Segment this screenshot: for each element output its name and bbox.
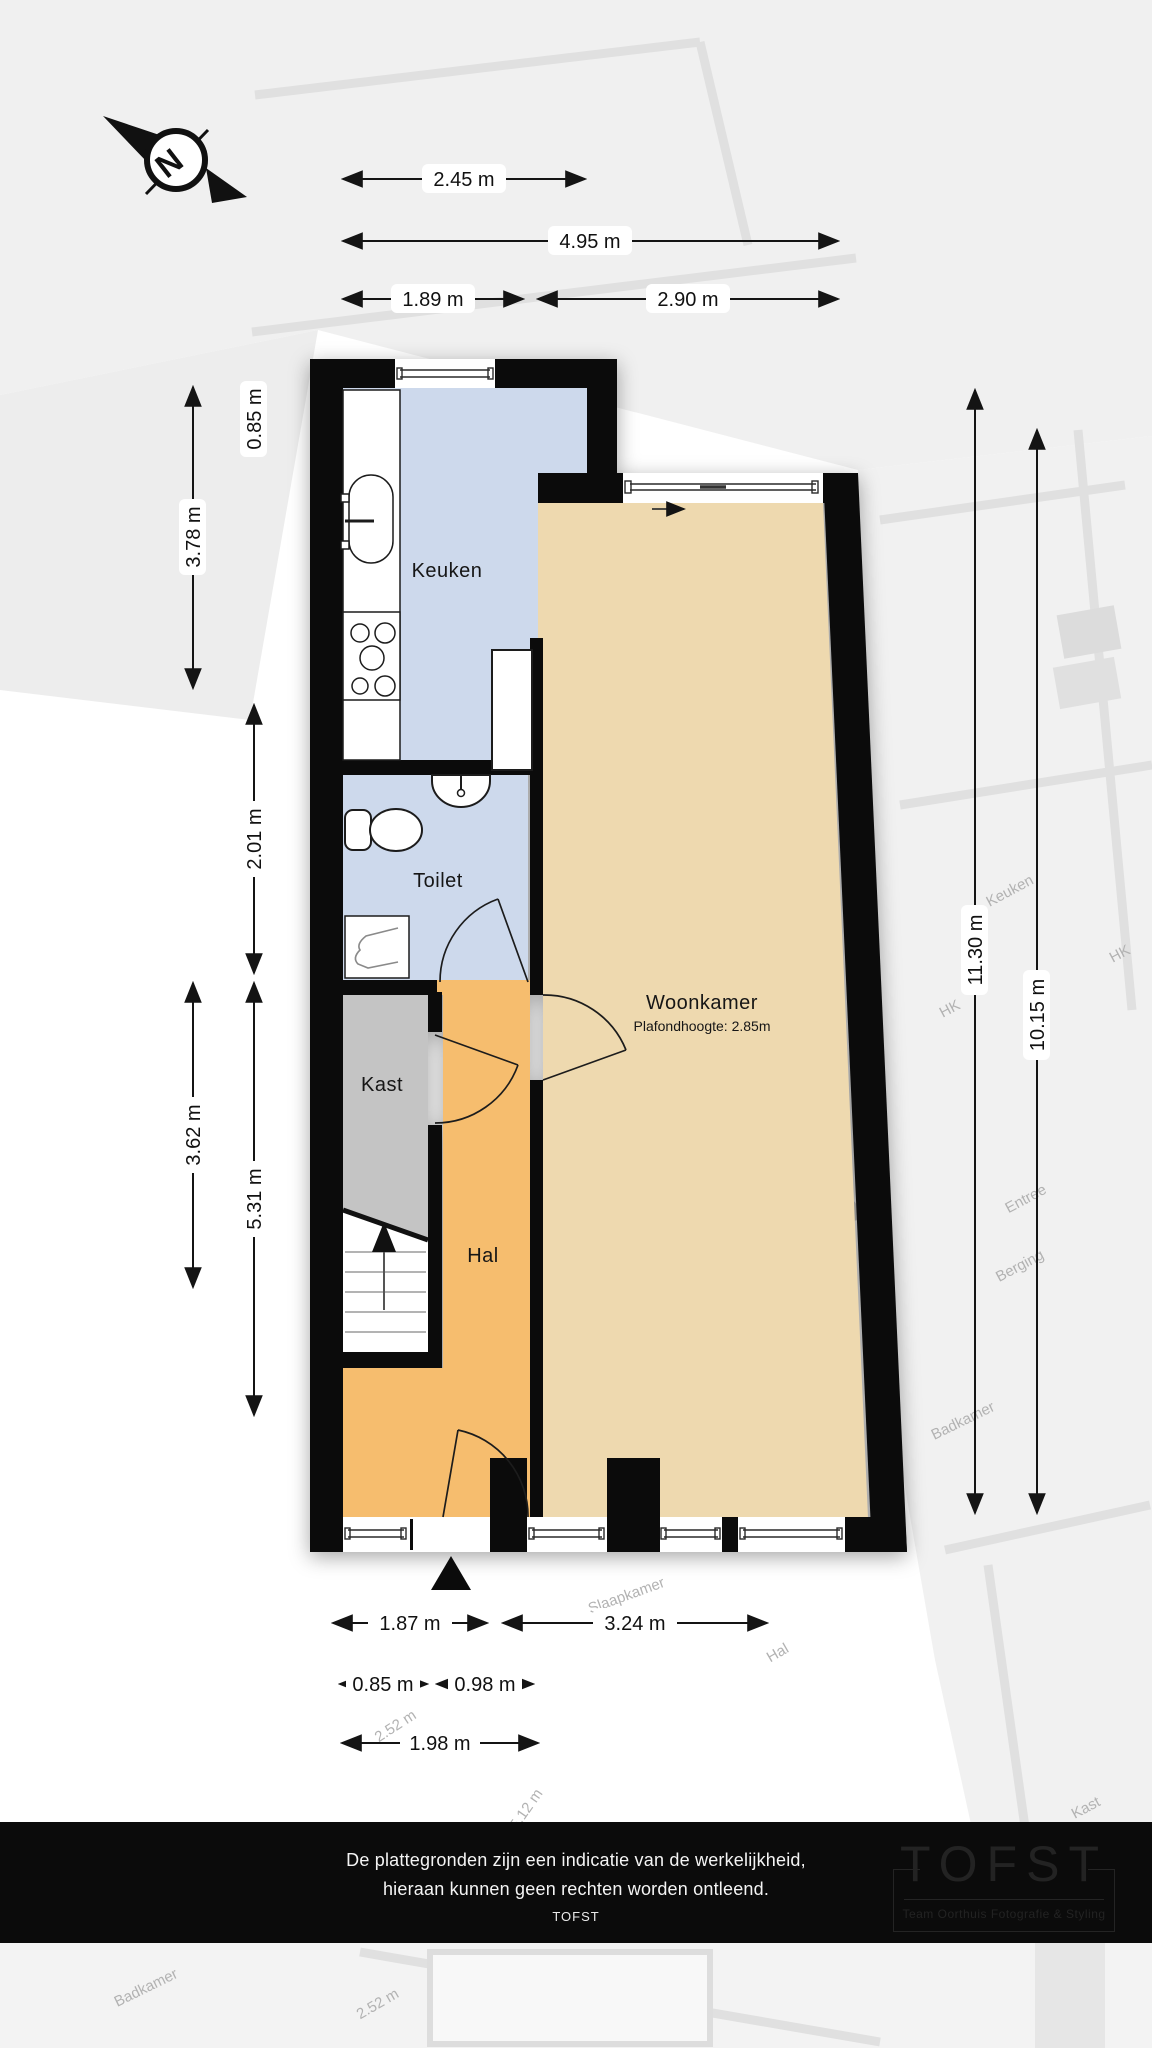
- woonkamer-ceiling-note: Plafondhoogte: 2.85m: [634, 1018, 771, 1034]
- svg-text:3.78 m: 3.78 m: [183, 506, 205, 567]
- wall-under-stairs: [343, 1352, 442, 1368]
- faucet-knob-icon: [341, 541, 349, 549]
- svg-text:2.01 m: 2.01 m: [244, 808, 266, 869]
- svg-text:3.24 m: 3.24 m: [604, 1613, 665, 1635]
- faucet-knob-icon: [341, 494, 349, 502]
- dimension-bottom-4: 0.98 m: [448, 1670, 522, 1697]
- dimension-bottom-2: 3.24 m: [593, 1608, 677, 1637]
- svg-text:11.30 m: 11.30 m: [965, 915, 987, 986]
- dimension-left-3: 2.01 m: [240, 801, 267, 877]
- svg-text:0.85 m: 0.85 m: [244, 388, 266, 449]
- wall-top-jog: [587, 388, 617, 473]
- floorplan-svg: Keuken HK HK Entree Berging Badkamer Sla…: [0, 0, 1152, 2048]
- dimension-right-2: 10.15 m: [1023, 970, 1050, 1060]
- dimension-left-5: 5.31 m: [240, 1161, 267, 1237]
- wall-left: [310, 359, 343, 1552]
- dimension-bottom-3: 0.85 m: [346, 1670, 420, 1697]
- facade-corner-right: [845, 1517, 907, 1552]
- kitchen-appliance: [492, 650, 532, 770]
- svg-text:0.85 m: 0.85 m: [352, 1674, 413, 1696]
- wall-toilet-bottom: [343, 980, 437, 995]
- svg-text:1.98 m: 1.98 m: [409, 1733, 470, 1755]
- dimension-top-2: 4.95 m: [548, 226, 632, 255]
- facade-pier-3: [722, 1517, 738, 1552]
- dimension-top-4: 2.90 m: [646, 284, 730, 313]
- wall-kast-hal-upper: [428, 992, 442, 1032]
- room-label-hal: Hal: [467, 1245, 499, 1267]
- svg-text:2.90 m: 2.90 m: [657, 289, 718, 311]
- room-label-kast: Kast: [361, 1074, 403, 1096]
- svg-text:1.89 m: 1.89 m: [402, 289, 463, 311]
- toilet-fountain: [345, 916, 409, 978]
- dimension-left-2: 3.78 m: [179, 499, 206, 575]
- wall-hal-woonkamer-lower: [530, 1080, 543, 1517]
- svg-text:10.15 m: 10.15 m: [1027, 979, 1049, 1051]
- logo-name: TOFST: [894, 1839, 1114, 1889]
- room-label-keuken: Keuken: [412, 560, 483, 582]
- svg-text:5.31 m: 5.31 m: [244, 1168, 266, 1229]
- dimension-top-3: 1.89 m: [391, 284, 475, 313]
- dimension-left-4: 3.62 m: [179, 1097, 206, 1173]
- room-label-toilet: Toilet: [413, 870, 463, 892]
- dimension-top-1: 2.45 m: [422, 164, 506, 193]
- logo-rule: [904, 1899, 1104, 1900]
- window-keuken-top: [395, 359, 495, 388]
- dimension-bottom-5: 1.98 m: [400, 1728, 480, 1757]
- svg-text:0.98 m: 0.98 m: [454, 1674, 515, 1696]
- entrance-marker-icon: [431, 1556, 471, 1590]
- wall-top-left: [310, 359, 395, 388]
- tofst-logo: TOFST Team Oorthuis Fotografie & Styling: [893, 1869, 1115, 1932]
- room-label-woonkamer: Woonkamer: [646, 992, 758, 1014]
- disclaimer-bar: De plattegronden zijn een indicatie van …: [0, 1822, 1152, 1943]
- facade-pier-2: [607, 1458, 660, 1552]
- toilet-wc: [345, 809, 422, 851]
- dimension-bottom-1: 1.87 m: [368, 1608, 452, 1637]
- floorplan-page: Keuken HK HK Entree Berging Badkamer Sla…: [0, 0, 1152, 2048]
- bg-label-hal: Hal: [764, 1640, 792, 1666]
- dimension-right-1: 11.30 m: [961, 905, 988, 995]
- wall-top-right: [495, 359, 617, 388]
- svg-text:1.87 m: 1.87 m: [379, 1613, 440, 1635]
- facade-pier-1: [490, 1458, 527, 1552]
- room-kast: [343, 995, 428, 1240]
- logo-tagline: Team Oorthuis Fotografie & Styling: [894, 1907, 1114, 1921]
- wall-kast-hal-lower: [428, 1125, 442, 1368]
- kitchen-sink: [349, 475, 393, 563]
- svg-text:4.95 m: 4.95 m: [559, 231, 620, 253]
- wall-woonkamer-top-left: [538, 473, 623, 503]
- floor-plan: Keuken Toilet Kast Hal Woonkamer Plafond…: [310, 359, 907, 1552]
- facade-door-jamb: [410, 1519, 413, 1550]
- kitchen-counter: [341, 390, 400, 760]
- dimension-left-1: 0.85 m: [240, 381, 267, 457]
- svg-text:2.45 m: 2.45 m: [433, 169, 494, 191]
- svg-text:3.62 m: 3.62 m: [183, 1104, 205, 1165]
